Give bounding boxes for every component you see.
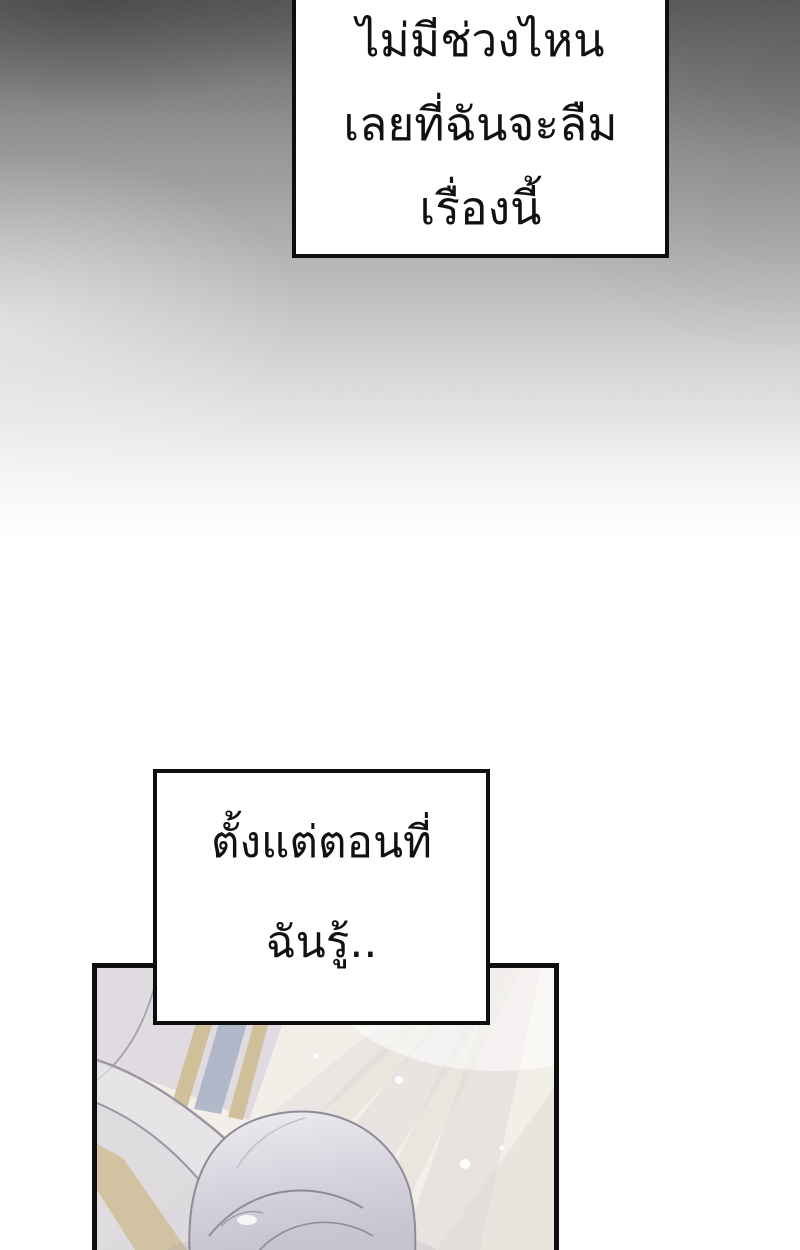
- narration-box-top: ไม่มีช่วงไหน เลยที่ฉันจะลืม เรื่องนี้: [292, 0, 669, 258]
- comic-page: ไม่มีช่วงไหน เลยที่ฉันจะลืม เรื่องนี้ ตั…: [0, 0, 800, 1250]
- narration-text-line: เรื่องนี้: [296, 166, 665, 250]
- narration-box-middle: ตั้งแต่ตอนที่ ฉันรู้..: [153, 769, 490, 1025]
- narration-text-line: ฉันรู้..: [157, 893, 486, 993]
- narration-text-line: ตั้งแต่ตอนที่: [157, 793, 486, 893]
- narration-text-line: เลยที่ฉันจะลืม: [296, 82, 665, 166]
- narration-text-line: ไม่มีช่วงไหน: [296, 0, 665, 82]
